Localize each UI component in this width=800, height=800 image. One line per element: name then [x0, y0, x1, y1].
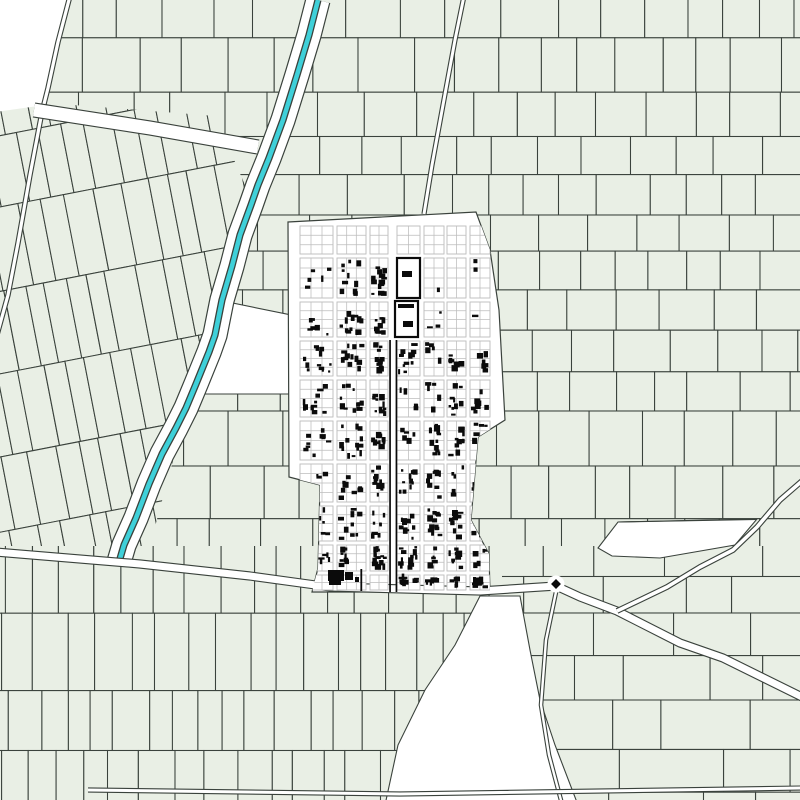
cadastral-map-image [0, 0, 800, 800]
large-building [328, 570, 344, 581]
large-building [329, 581, 341, 585]
main-street-edge [389, 340, 391, 592]
large-building [345, 572, 353, 580]
map-canvas[interactable] [0, 0, 800, 800]
large-building [355, 577, 359, 582]
road-junction-building [548, 576, 565, 593]
village-special-block [397, 258, 420, 298]
main-street-edge [396, 340, 398, 592]
